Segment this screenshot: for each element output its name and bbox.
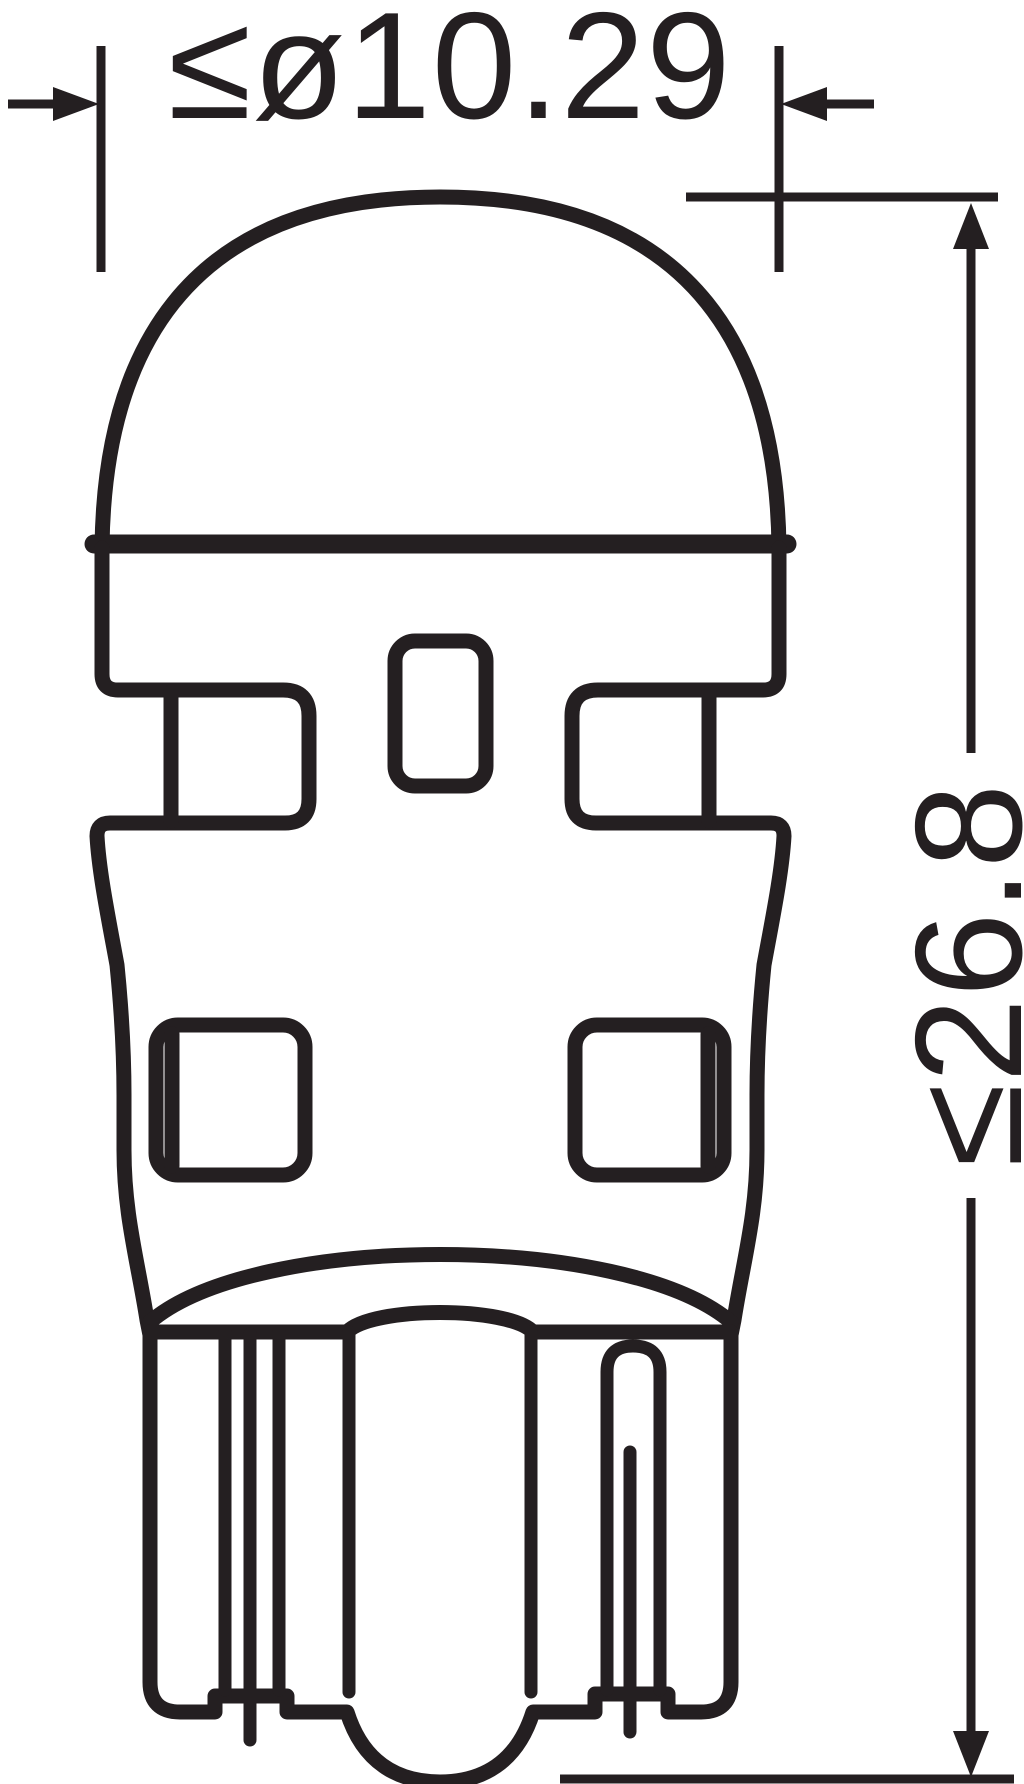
body-outline — [97, 548, 784, 1782]
diameter-arrow-left — [53, 87, 99, 121]
center-square — [395, 641, 486, 786]
height-arrow-bottom — [953, 1731, 989, 1777]
diameter-label: ≤ø10.29 — [168, 0, 732, 151]
bulb-drawing — [94, 197, 787, 1782]
technical-drawing: ≤ø10.29 ≤26.8 — [0, 0, 1024, 1784]
wedge-top-line — [150, 1313, 731, 1333]
bulb-dome — [102, 197, 779, 548]
drawing-page: ≤ø10.29 ≤26.8 — [0, 0, 1024, 1784]
diameter-arrow-right — [781, 87, 827, 121]
diameter-dimension: ≤ø10.29 — [8, 0, 874, 272]
height-label: ≤26.8 — [884, 783, 1024, 1167]
height-arrow-top — [953, 203, 989, 249]
